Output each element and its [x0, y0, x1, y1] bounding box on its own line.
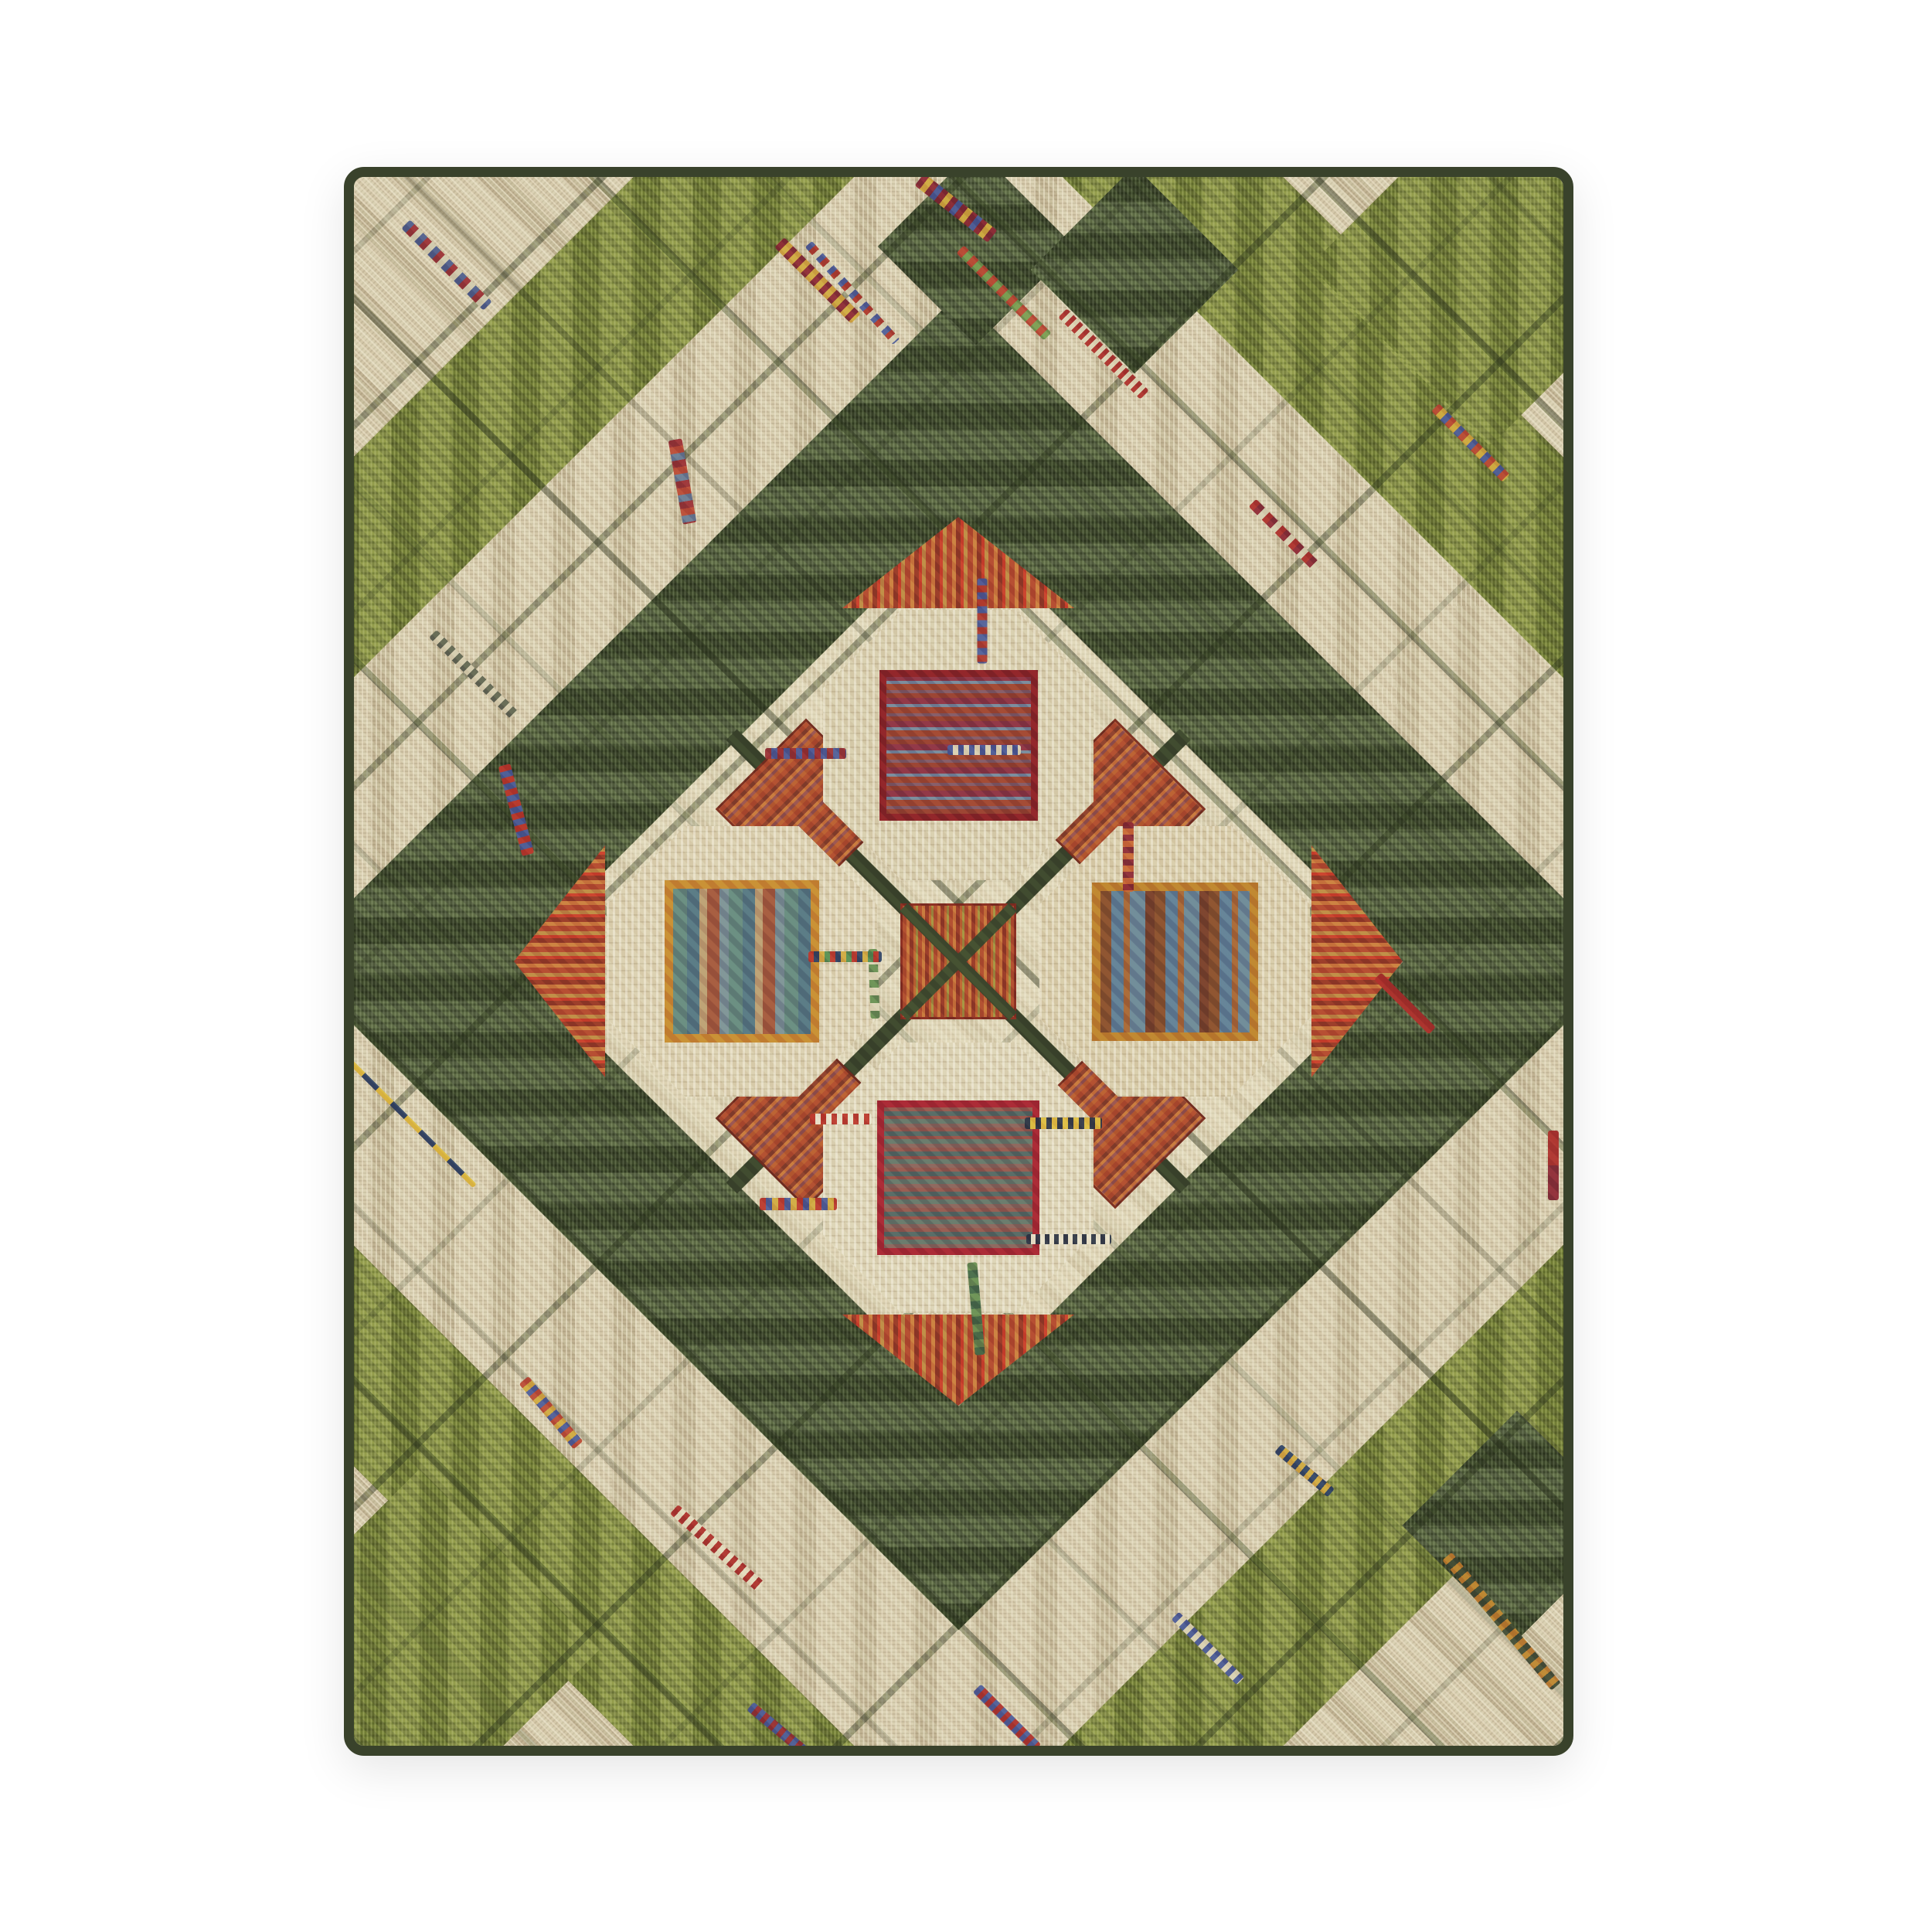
- weave-dash: [760, 1198, 837, 1210]
- rug-photo: [344, 167, 1573, 1756]
- photo-stage: [0, 0, 1932, 1932]
- octagon-east-square: [1092, 883, 1258, 1041]
- weave-dash: [808, 951, 882, 962]
- weave-dash: [1123, 822, 1134, 892]
- weave-dash: [810, 1114, 872, 1124]
- weave-dash: [978, 578, 988, 663]
- octagon-west-square: [665, 880, 819, 1043]
- weave-dash: [1025, 1117, 1102, 1129]
- weave-dash: [765, 748, 846, 759]
- weave-dash: [1026, 1234, 1111, 1244]
- weave-dash: [1548, 1131, 1559, 1200]
- octagon-south-square: [877, 1100, 1039, 1255]
- weave-dash: [947, 745, 1021, 755]
